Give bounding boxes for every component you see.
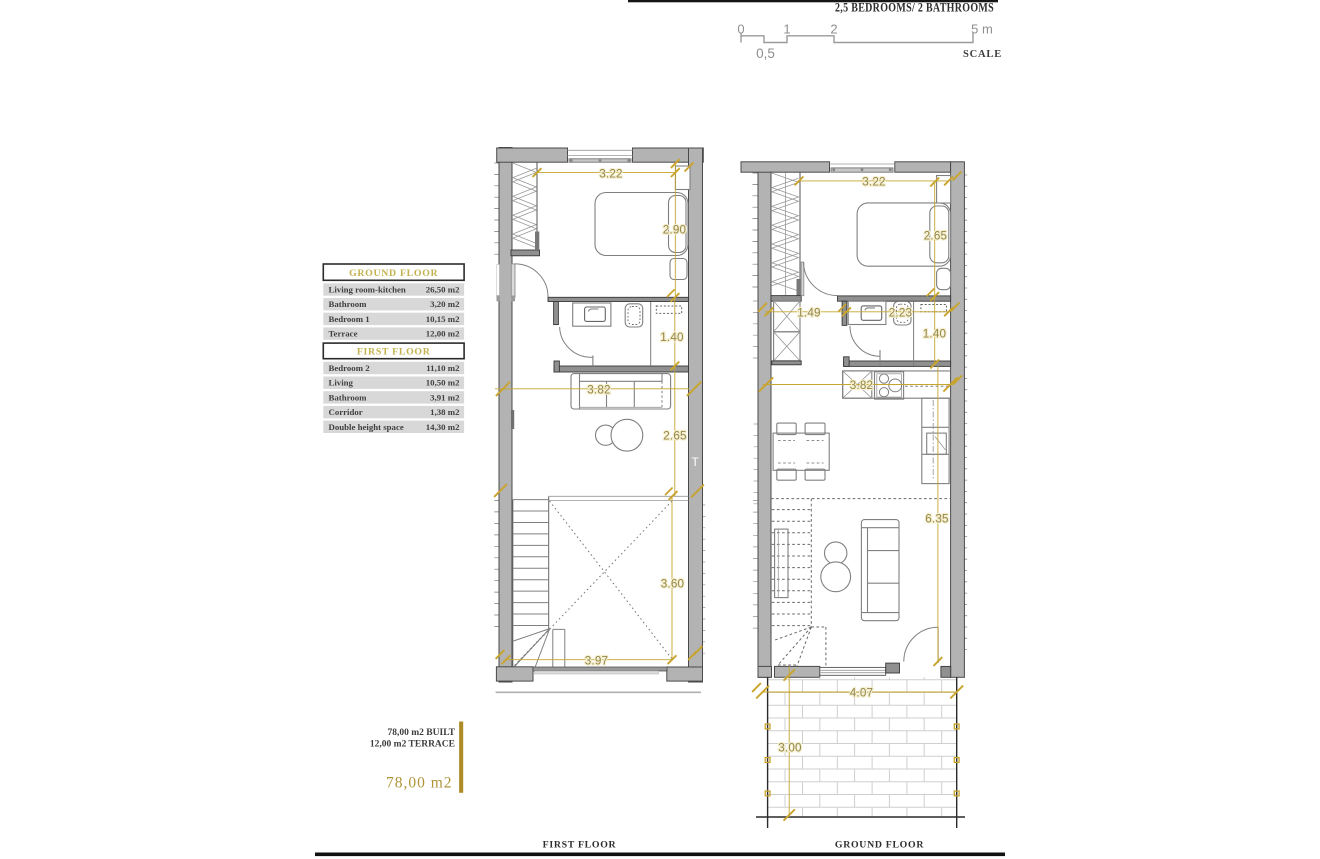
- svg-text:2,5 BEDROOMS/ 2 BATHROOMS: 2,5 BEDROOMS/ 2 BATHROOMS: [835, 1, 994, 15]
- svg-text:6.35: 6.35: [925, 512, 949, 526]
- svg-text:3.22: 3.22: [862, 175, 886, 189]
- svg-text:Bathroom: Bathroom: [329, 299, 368, 309]
- svg-text:GROUND FLOOR: GROUND FLOOR: [835, 840, 924, 851]
- svg-text:1.40: 1.40: [660, 330, 684, 344]
- svg-text:SCALE: SCALE: [963, 49, 1002, 60]
- svg-text:2.65: 2.65: [924, 229, 948, 243]
- svg-text:0: 0: [737, 22, 744, 37]
- svg-text:11,10 m2: 11,10 m2: [426, 363, 460, 373]
- svg-text:10,15 m2: 10,15 m2: [426, 314, 460, 324]
- svg-text:3.97: 3.97: [585, 654, 609, 668]
- svg-text:3,20 m2: 3,20 m2: [430, 299, 460, 309]
- svg-text:GROUND FLOOR: GROUND FLOOR: [349, 268, 438, 279]
- svg-text:2.23: 2.23: [889, 306, 913, 320]
- svg-text:FIRST FLOOR: FIRST FLOOR: [357, 347, 431, 358]
- svg-text:2.90: 2.90: [663, 223, 687, 237]
- svg-text:1.49: 1.49: [797, 305, 821, 319]
- svg-text:Living room-kitchen: Living room-kitchen: [329, 285, 406, 295]
- svg-text:Corridor: Corridor: [329, 407, 363, 417]
- svg-text:14,30 m2: 14,30 m2: [426, 422, 460, 432]
- svg-text:5 m: 5 m: [971, 22, 993, 37]
- svg-text:Living: Living: [329, 378, 354, 388]
- svg-text:3.82: 3.82: [587, 382, 611, 396]
- svg-text:1: 1: [783, 22, 790, 37]
- svg-text:78,00 m2: 78,00 m2: [386, 775, 453, 792]
- svg-text:3,91 m2: 3,91 m2: [430, 392, 460, 402]
- svg-text:Terrace: Terrace: [329, 329, 358, 339]
- svg-text:T: T: [692, 455, 700, 469]
- svg-text:Bedroom 2: Bedroom 2: [329, 363, 371, 373]
- svg-text:3.60: 3.60: [661, 577, 685, 591]
- svg-text:12,00 m2 TERRACE: 12,00 m2 TERRACE: [370, 740, 455, 750]
- svg-text:10,50 m2: 10,50 m2: [426, 378, 460, 388]
- svg-text:Bedroom 1: Bedroom 1: [329, 314, 370, 324]
- svg-text:12,00 m2: 12,00 m2: [426, 329, 460, 339]
- svg-text:2: 2: [830, 22, 837, 37]
- svg-text:FIRST FLOOR: FIRST FLOOR: [543, 840, 617, 851]
- svg-text:26,50 m2: 26,50 m2: [426, 285, 460, 295]
- svg-text:1.40: 1.40: [923, 327, 947, 341]
- svg-text:2.65: 2.65: [663, 429, 687, 443]
- svg-text:Double height space: Double height space: [329, 422, 404, 432]
- svg-text:3.22: 3.22: [599, 167, 623, 181]
- svg-text:Bathroom: Bathroom: [329, 392, 368, 402]
- svg-text:1,38 m2: 1,38 m2: [430, 407, 460, 417]
- svg-text:4.07: 4.07: [850, 686, 874, 700]
- svg-text:3.82: 3.82: [850, 378, 874, 392]
- svg-text:0,5: 0,5: [756, 46, 775, 61]
- svg-text:78,00 m2 BUILT: 78,00 m2 BUILT: [388, 728, 456, 738]
- svg-text:3.00: 3.00: [778, 741, 802, 755]
